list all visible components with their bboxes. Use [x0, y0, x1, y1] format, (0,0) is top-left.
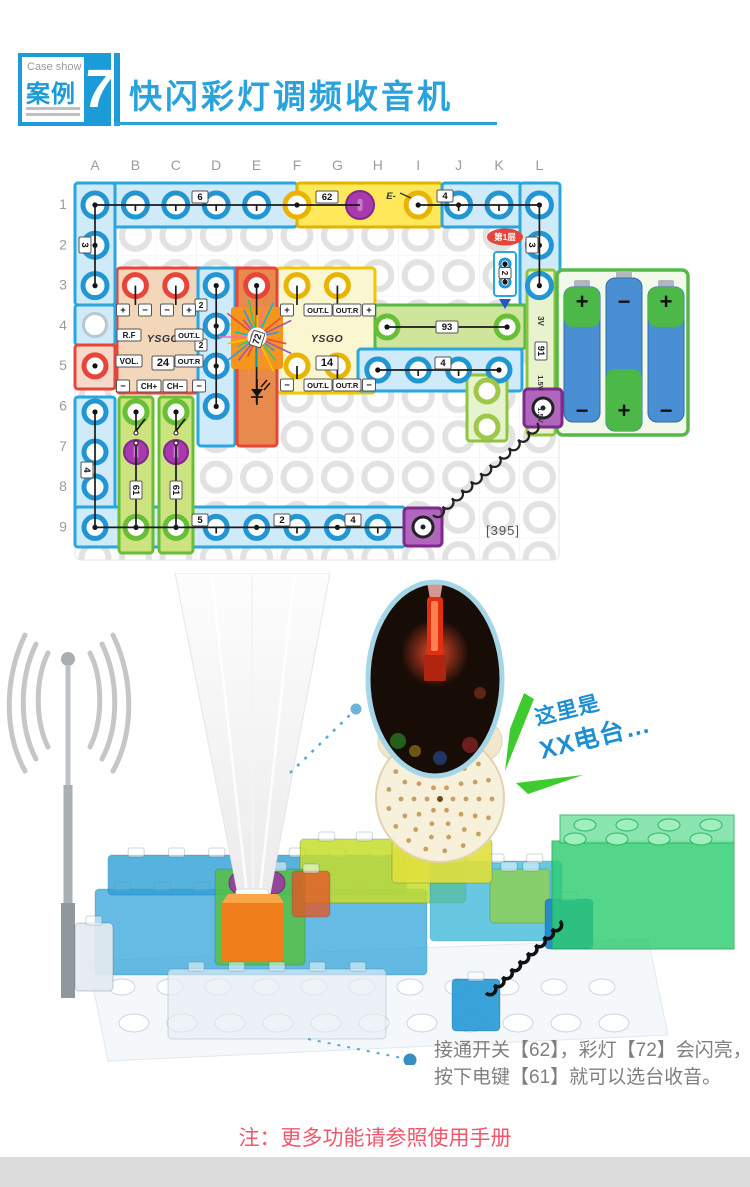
- chip-m14_outr: OUT.R: [333, 304, 361, 316]
- brick-stud: [269, 962, 285, 971]
- battery-sign: +: [660, 289, 673, 314]
- chip-text: E-: [386, 191, 396, 202]
- chip-k2: 2: [499, 268, 511, 279]
- brick-stud: [188, 962, 204, 971]
- case-number: 7: [80, 54, 113, 124]
- chip-text: OUT.L: [307, 306, 329, 315]
- green-stud: [648, 833, 670, 845]
- page: Case show 案例 7 快闪彩灯调频收音机 ABCDEFGHIJKL 12…: [0, 0, 750, 1187]
- col-label-D: D: [211, 157, 221, 173]
- brick-stud: [356, 832, 372, 841]
- instruction-pointer-dot: [404, 1054, 417, 1066]
- battery-terminal: [574, 280, 590, 287]
- chip-top6: 6: [192, 191, 208, 203]
- brick-stud: [319, 832, 335, 841]
- speaker-hole: [446, 835, 451, 840]
- speaker-hole: [413, 827, 418, 832]
- chip-m24_vol: VOL.: [116, 355, 142, 367]
- wire-dot: [92, 363, 97, 368]
- brick: [452, 979, 500, 1031]
- chip-text: 3V: [536, 316, 545, 326]
- chip-m24_outr: OUT.R: [175, 355, 203, 367]
- antenna: [61, 652, 75, 998]
- speaker-hole: [490, 797, 495, 802]
- chip-text: 4: [440, 358, 446, 369]
- speaker-hole: [486, 815, 491, 820]
- clear-stud: [397, 979, 423, 995]
- chip-m14_p2: +: [363, 304, 376, 316]
- chip-text: 6: [197, 192, 202, 203]
- chip-top4: 4: [437, 190, 453, 202]
- chip-text: 4: [81, 467, 92, 473]
- circuit-diagram: ABCDEFGHIJKL 123456789 +−+−+− 第1层[395] 6…: [55, 152, 695, 573]
- brick-stud: [303, 864, 319, 873]
- col-label-I: I: [416, 157, 420, 173]
- speaker-hole: [386, 806, 391, 811]
- chip-text: 2: [500, 271, 509, 276]
- chip-m14_boutr: OUT.R: [333, 379, 361, 391]
- chip-m24_no: 24: [152, 356, 174, 370]
- chip-text: 3: [526, 242, 537, 247]
- green-stud: [606, 833, 628, 845]
- chip-text: OUT.L: [178, 331, 200, 340]
- speaker-hole: [444, 785, 449, 790]
- peg: [476, 380, 498, 402]
- chip-text: 2: [199, 300, 204, 310]
- chip-text: VOL.: [120, 357, 139, 366]
- chip-m14_no: 14: [316, 356, 338, 370]
- col-label-K: K: [494, 157, 504, 173]
- flash-icon-2: [516, 775, 583, 794]
- clear-stud: [551, 1014, 581, 1032]
- chip-m14_outl: OUT.L: [304, 304, 332, 316]
- speaker-hole: [425, 797, 430, 802]
- speaker-hole: [393, 824, 398, 829]
- chip-bat_15a: 1.5V: [536, 375, 545, 390]
- row-label-2: 2: [59, 236, 67, 252]
- chip-text: 1.5V: [536, 375, 545, 390]
- chip-text: +: [284, 305, 290, 316]
- battery-sign: +: [618, 398, 631, 423]
- speaker-hole: [477, 797, 482, 802]
- case-badge: Case show 案例 7: [18, 53, 111, 126]
- chip-m24_m2: −: [161, 304, 174, 316]
- green-block-box: [552, 815, 734, 949]
- speaker-hole: [486, 778, 491, 783]
- col-label-H: H: [373, 157, 383, 173]
- product-photo: 这里是 XX电台…: [0, 573, 750, 1065]
- green-stud: [574, 819, 596, 831]
- speaker-hole: [393, 769, 398, 774]
- battery-sign: −: [660, 398, 673, 423]
- chip-text: −: [164, 305, 170, 316]
- battery-terminal: [616, 271, 632, 278]
- chip-bat91: 91: [535, 342, 547, 360]
- chip-key61b: 61: [170, 481, 182, 499]
- col-label-C: C: [171, 157, 181, 173]
- speaker-hole: [461, 843, 466, 848]
- part-number: [395]: [486, 523, 520, 538]
- speaker-hole: [423, 847, 428, 852]
- battery-sign: −: [618, 289, 631, 314]
- col-label-B: B: [131, 157, 140, 173]
- speaker-hole: [431, 785, 436, 790]
- chip-text: OUT.R: [336, 381, 359, 390]
- speaker-hole: [386, 787, 391, 792]
- chip-text: OUT.L: [307, 381, 329, 390]
- chip-text: CH−: [167, 382, 184, 391]
- chip-text: CH+: [141, 382, 158, 391]
- chip-text: −: [196, 381, 202, 392]
- clear-stud: [541, 979, 567, 995]
- brick: [75, 923, 113, 991]
- chip-text: 5: [197, 515, 203, 526]
- brick-stud: [209, 848, 225, 857]
- chip-text: +: [120, 305, 126, 316]
- chip-text: 61: [170, 485, 181, 496]
- chip-bat_15b: 1.5V: [536, 407, 545, 422]
- switch-contact: [174, 441, 178, 445]
- title-divider: [114, 53, 120, 126]
- chip-text: −: [120, 381, 126, 392]
- chip-text: 1.5V: [536, 407, 545, 422]
- row-label-4: 4: [59, 317, 67, 333]
- chip-d2a: 2: [195, 299, 207, 311]
- chip-text: 4: [350, 515, 356, 526]
- page-title: 快闪彩灯调频收音机: [129, 70, 453, 118]
- brick-stud: [168, 848, 184, 857]
- row-label-1: 1: [59, 196, 67, 212]
- chip-right3: 3: [526, 237, 538, 253]
- brick-stud: [128, 848, 144, 857]
- layer-badge-text: 第1层: [494, 232, 516, 242]
- speaker-hole: [464, 797, 469, 802]
- brick: [292, 871, 330, 917]
- row-label-7: 7: [59, 438, 67, 454]
- chip-m14_bm2: −: [363, 379, 376, 391]
- orange-block: [222, 903, 284, 961]
- chip-text: OUT.R: [336, 306, 359, 315]
- speaker-hole: [444, 808, 449, 813]
- chip-text: 14: [321, 357, 334, 369]
- switch-contact: [134, 441, 138, 445]
- column-labels: ABCDEFGHIJKL: [90, 157, 543, 173]
- chip-text: 4: [442, 191, 448, 202]
- badge-rule-2: [26, 113, 80, 116]
- brick-stud: [501, 862, 517, 871]
- flash-icon: [505, 693, 534, 771]
- speaker-hole: [399, 797, 404, 802]
- chip-text: 93: [442, 322, 453, 333]
- chip-text: 62: [322, 192, 333, 203]
- chip-text: 61: [130, 485, 141, 496]
- speaker-hole: [417, 812, 422, 817]
- chip-bat_3v: 3V: [536, 316, 545, 326]
- speaker-hole: [473, 780, 478, 785]
- inset-pointer-dot: [351, 704, 362, 715]
- speaker-hole: [446, 821, 451, 826]
- chip-text: 2: [279, 515, 284, 526]
- instruction-line1: 接通开关【62】，彩灯【72】会闪亮，: [434, 1037, 750, 1064]
- case-label: 案例: [26, 74, 76, 109]
- chip-left3: 3: [79, 237, 91, 253]
- chip-row9_4: 4: [345, 514, 361, 526]
- battery-sign: −: [576, 398, 589, 423]
- instruction-line2: 按下电键【61】就可以选台收音。: [434, 1064, 750, 1091]
- chip-text: −: [142, 305, 148, 316]
- chip-m14_brand: YSGO: [311, 333, 343, 345]
- speaker-hole: [429, 835, 434, 840]
- chip-e_mark: E-: [386, 191, 396, 202]
- case-badge-inner: Case show 案例: [22, 57, 84, 122]
- footer-bar: [0, 1157, 750, 1187]
- speaker-hole: [459, 812, 464, 817]
- chip-row5_4: 4: [435, 357, 451, 369]
- battery-pack: +−+−+−: [557, 270, 688, 435]
- battery-sign: +: [576, 289, 589, 314]
- switch-contact: [134, 431, 138, 435]
- chip-m24_outl: OUT.L: [175, 329, 203, 341]
- col-label-J: J: [455, 157, 462, 173]
- brick: [490, 869, 550, 923]
- chip-text: +: [366, 305, 372, 316]
- brick: [168, 969, 386, 1039]
- green-stud: [700, 819, 722, 831]
- mic-circle: [84, 314, 107, 337]
- chip-text: −: [284, 380, 290, 391]
- badge-rule-1: [26, 107, 80, 110]
- speaker-hole: [412, 797, 417, 802]
- speaker-hole: [476, 762, 481, 767]
- chip-row9_5: 5: [192, 514, 208, 526]
- clear-stud: [407, 1014, 437, 1032]
- speaker-hole: [402, 780, 407, 785]
- manual-note: 注：更多功能请参照使用手册: [0, 1122, 750, 1152]
- green-stud: [658, 819, 680, 831]
- col-label-G: G: [332, 157, 343, 173]
- chip-m24_m1: −: [139, 304, 152, 316]
- brick-stud: [468, 972, 484, 981]
- col-label-A: A: [90, 157, 100, 173]
- row-label-6: 6: [59, 398, 67, 414]
- brick-stud: [350, 962, 366, 971]
- chip-m24_bm2: −: [193, 380, 206, 392]
- chip-text: 91: [535, 346, 546, 357]
- brick-stud: [309, 962, 325, 971]
- speaker-hole: [476, 832, 481, 837]
- speaker-hole: [406, 838, 411, 843]
- speaker-hole: [473, 814, 478, 819]
- chip-spk93: 93: [436, 321, 458, 333]
- chip-text: YSGO: [311, 333, 343, 345]
- clear-stud: [589, 979, 615, 995]
- row-label-3: 3: [59, 277, 67, 293]
- chip-text: −: [366, 380, 372, 391]
- brick-stud: [86, 916, 102, 925]
- green-stud: [690, 833, 712, 845]
- chip-m24_brand: YSGO: [147, 333, 179, 345]
- speaker-hole: [442, 848, 447, 853]
- chip-row9_2: 2: [274, 514, 290, 526]
- chip-text: YSGO: [147, 333, 179, 345]
- chip-m24_chm: CH−: [163, 380, 187, 392]
- chip-m14_bm1: −: [281, 379, 294, 391]
- green-stud: [616, 819, 638, 831]
- chip-m14_p1: +: [281, 304, 294, 316]
- switch-contact: [174, 431, 178, 435]
- row-label-5: 5: [59, 357, 67, 373]
- chip-m24_p1: +: [117, 304, 130, 316]
- title-underline: [114, 122, 497, 125]
- row-label-8: 8: [59, 478, 67, 494]
- clear-stud: [503, 1014, 533, 1032]
- speaker-hole: [430, 821, 435, 826]
- chip-top62: 62: [316, 191, 338, 203]
- chip-left4: 4: [81, 462, 93, 478]
- battery-terminal: [658, 280, 674, 287]
- chip-m14_boutl: OUT.L: [304, 379, 332, 391]
- chip-m24_chp: CH+: [137, 380, 161, 392]
- chip-text: +: [186, 305, 192, 316]
- speaker-hole: [417, 781, 422, 786]
- speaker-hole: [402, 814, 407, 819]
- col-label-E: E: [252, 157, 261, 173]
- speaker-hole: [431, 808, 436, 813]
- chip-m24_bm1: −: [117, 380, 130, 392]
- clear-stud: [119, 1014, 149, 1032]
- speaker-hole: [462, 827, 467, 832]
- chip-m24_rf: R.F: [117, 329, 141, 341]
- chip-text: 24: [157, 357, 170, 369]
- clear-stud: [599, 1014, 629, 1032]
- brick-stud: [229, 962, 245, 971]
- row-labels: 123456789: [59, 196, 67, 534]
- speaker-hole: [459, 781, 464, 786]
- chip-m24_p2: +: [183, 304, 196, 316]
- col-label-F: F: [293, 157, 302, 173]
- chip-text: R.F: [123, 331, 136, 340]
- green-stud: [564, 833, 586, 845]
- inset-photo: [368, 582, 502, 776]
- chip-key61a: 61: [130, 481, 142, 499]
- instruction-text: 接通开关【62】，彩灯【72】会闪亮， 按下电键【61】就可以选台收音。: [434, 1037, 750, 1091]
- chip-text: 2: [199, 340, 204, 350]
- speaker-hole: [451, 797, 456, 802]
- col-label-L: L: [536, 157, 544, 173]
- peg: [476, 416, 498, 438]
- case-show-label: Case show: [27, 61, 81, 73]
- brick-stud: [523, 862, 539, 871]
- chip-text: 3: [79, 242, 90, 247]
- row-label-9: 9: [59, 518, 67, 534]
- chip-text: OUT.R: [178, 357, 201, 366]
